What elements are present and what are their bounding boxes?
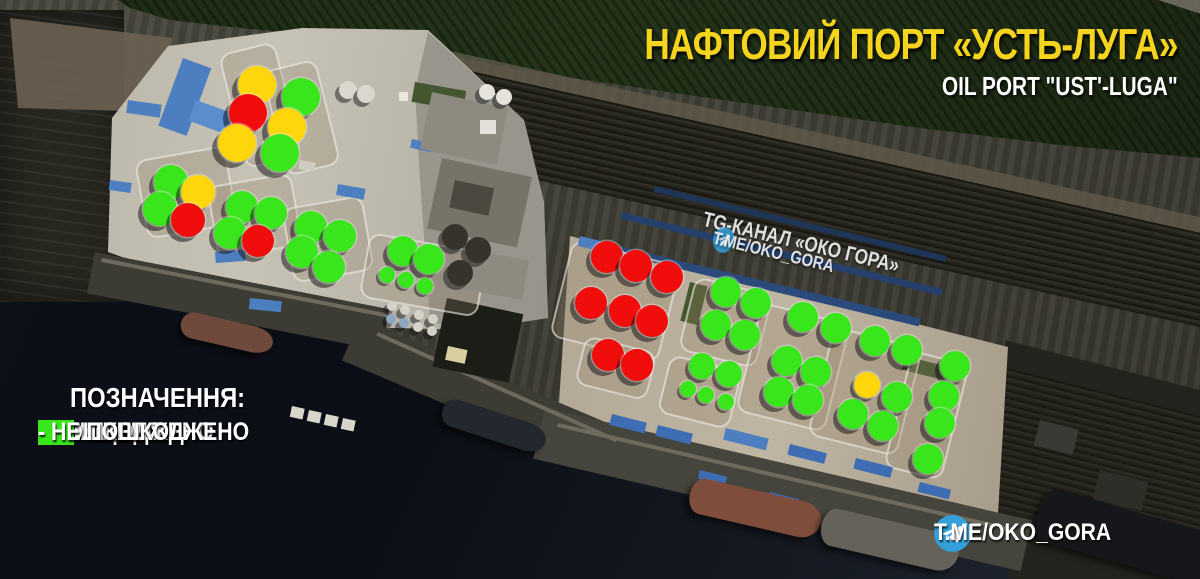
- tank-marker-destroyed: [636, 305, 668, 337]
- tank-marker-intact: [711, 277, 741, 307]
- tank-marker-destroyed: [621, 349, 653, 381]
- tank-marker-intact: [730, 320, 760, 350]
- tank-marker-intact: [940, 351, 970, 381]
- tank-marker-intact: [261, 134, 299, 172]
- legend-label: - НЕ ПОШКОДЖЕНО: [38, 418, 249, 447]
- tank-marker-destroyed: [575, 287, 607, 319]
- tank-marker-intact: [741, 288, 771, 318]
- tank-marker-intact: [716, 361, 742, 387]
- tank-marker-intact: [379, 267, 395, 283]
- tank-marker-intact: [414, 244, 444, 274]
- tank-marker-destroyed: [592, 339, 624, 371]
- tank-marker-destroyed: [591, 241, 623, 273]
- legend-heading: ПОЗНАЧЕННЯ:: [70, 382, 245, 414]
- tank-marker-intact: [324, 220, 356, 252]
- tank-marker-intact: [417, 278, 433, 294]
- tank-marker-intact: [801, 357, 831, 387]
- legend: ПОЗНАЧЕННЯ: - ЗНИЩЕНО- ПОШКОДЖЕНО- НЕ ПО…: [38, 382, 276, 432]
- tank-marker-intact: [882, 382, 912, 412]
- tank-marker-damaged: [854, 372, 880, 398]
- telegram-handle: T.ME/OKO_GORA: [934, 519, 1135, 547]
- tank-marker-intact: [701, 310, 731, 340]
- tank-marker-intact: [925, 408, 955, 438]
- tank-marker-destroyed: [171, 203, 205, 237]
- tank-marker-intact: [838, 399, 868, 429]
- tank-marker-intact: [698, 387, 714, 403]
- tank-marker-intact: [821, 313, 851, 343]
- annotated-satellite-map: НАФТОВИЙ ПОРТ «УСТЬ-ЛУГА» OIL PORT "UST'…: [0, 0, 1200, 579]
- tank-marker-intact: [313, 251, 345, 283]
- tank-marker-intact: [929, 381, 959, 411]
- tank-marker-intact: [398, 272, 414, 288]
- tank-marker-intact: [718, 394, 734, 410]
- tank-marker-destroyed: [620, 250, 652, 282]
- tank-marker-intact: [764, 377, 794, 407]
- tank-marker-intact: [772, 346, 802, 376]
- tank-marker-intact: [680, 381, 696, 397]
- tank-marker-intact: [793, 385, 823, 415]
- tank-marker-damaged: [218, 124, 256, 162]
- map-subtitle: OIL PORT "UST'-LUGA": [942, 71, 1178, 102]
- tank-marker-destroyed: [242, 225, 274, 257]
- tank-marker-intact: [788, 302, 818, 332]
- tank-marker-intact: [689, 353, 715, 379]
- tank-marker-intact: [214, 217, 246, 249]
- tank-marker-intact: [892, 335, 922, 365]
- map-title: НАФТОВИЙ ПОРТ «УСТЬ-ЛУГА»: [645, 20, 1178, 70]
- tank-marker-intact: [860, 326, 890, 356]
- tank-marker-intact: [868, 411, 898, 441]
- tank-marker-intact: [913, 444, 943, 474]
- tank-marker-destroyed: [651, 261, 683, 293]
- telegram-handle-text: T.ME/OKO_GORA: [934, 519, 1111, 547]
